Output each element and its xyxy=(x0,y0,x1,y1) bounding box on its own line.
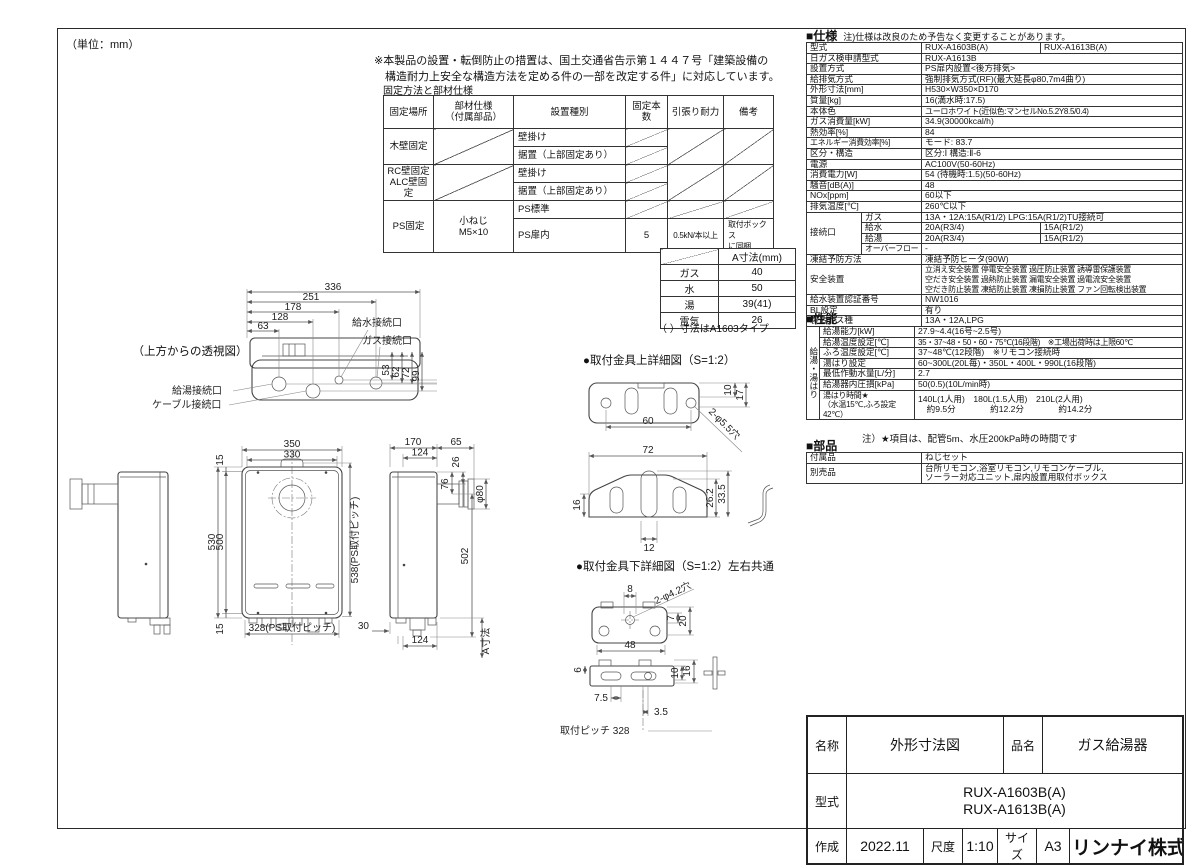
table-cell: 2.7 xyxy=(915,369,1183,380)
drawing-shape xyxy=(403,564,406,567)
table-cell: 27.9~4.4(16号~2.5号) xyxy=(915,327,1183,338)
table-cell: 給湯 xyxy=(862,233,922,244)
dim-label: 72 xyxy=(642,445,654,456)
drawing-shape xyxy=(589,475,707,517)
table-cell: 有り xyxy=(922,305,1183,316)
table-cell: 安全装置 xyxy=(807,265,922,295)
table-row: 設置方式PS扉内設置<後方排気> xyxy=(807,64,1183,75)
table-cell: 35・37~48・50・60・75℃(16段階) ※工場出荷時は上限60℃ xyxy=(915,337,1183,348)
table-cell: RUX-A1613B(A) xyxy=(1041,43,1183,54)
drawing-shape xyxy=(592,607,667,643)
table-cell: 140L(1人用) 180L(1.5人用) 210L(2人用) 約9.5分 約1… xyxy=(915,390,1183,420)
dim-label: 65 xyxy=(450,437,462,448)
spec-table: 型式RUX-A1603B(A)RUX-A1613B(A)日ガス検申請型式RUX-… xyxy=(806,42,1183,327)
table-row: 質量[kg]16(満水時:17.5) xyxy=(807,95,1183,106)
model-1: RUX-A1603B(A) xyxy=(963,784,1066,800)
dim-label: 502 xyxy=(460,547,471,564)
bracket-bottom-detail: ●取付金具下詳細図（S=1:2） 左右共通 8 2-φ4.2穴 7 20 48 … xyxy=(560,559,774,737)
table-cell: 型式 xyxy=(807,43,922,54)
drawing-shape xyxy=(650,626,660,636)
table-cell: エネルギー消費効率[%] xyxy=(807,138,922,149)
spec-title: ■仕様 xyxy=(806,29,837,43)
table-row: 給水装置認証番号NW1016 xyxy=(807,295,1183,306)
top-view: （上方からの透視図） 給水接続口 ガス接続口 給湯接続口 ケーブル接続口 336 xyxy=(133,282,438,411)
table-cell: 電源 xyxy=(807,159,922,170)
dim-label: 538(PS取付ピッチ) xyxy=(348,497,361,584)
created-label: 作成 xyxy=(808,829,847,864)
table-cell: 日ガス検申請型式 xyxy=(807,53,922,64)
table-cell: オーバーフロー xyxy=(862,244,922,255)
table-cell: 湯はり設定 xyxy=(820,358,915,369)
table-row: 電源AC100V(50-60Hz) xyxy=(807,159,1183,170)
table-row: 安全装置立消え安全装置 停電安全装置 過圧防止装置 誘導雷保護装置空だき安全装置… xyxy=(807,265,1183,295)
table-cell: ユーロホワイト(近似色:マンセルNo.5.2Y8.5/0.4) xyxy=(922,106,1183,117)
dim-label: 12 xyxy=(643,543,655,554)
dim-label: 48 xyxy=(624,640,636,651)
drawing-shape xyxy=(229,391,306,405)
table-cell: 260℃以下 xyxy=(922,201,1183,212)
drawing-shape xyxy=(377,347,380,378)
dim-label: 6 xyxy=(573,667,584,673)
table-cell: ガス xyxy=(862,212,922,223)
dim-label: 128 xyxy=(272,312,289,323)
table-cell: 20A(R3/4) xyxy=(922,223,1041,234)
table-cell: 本体色 xyxy=(807,106,922,117)
company-name: リンナイ株式会社 xyxy=(1070,829,1183,864)
table-cell: 区分・構造 xyxy=(807,148,922,159)
drawing-shape xyxy=(283,344,305,356)
table-row: 最低作動水量[L/分]2.7 xyxy=(807,369,1183,380)
table-row: 給湯・湯はり給湯能力[kW]27.9~4.4(16号~2.5号) xyxy=(807,327,1183,338)
table-cell: 13A・12A:15A(R1/2) LPG:15A(R1/2)TU接続可 xyxy=(922,212,1183,223)
dim-label: 60 xyxy=(642,416,654,427)
table-cell: 37~48℃(12段階) ※リモコン接続時 xyxy=(915,348,1183,359)
table-cell: 給湯器内圧損[kPa] xyxy=(820,379,915,390)
dim-label: 2-φ4.2穴 xyxy=(652,579,693,607)
dim-label: 328(PS取付ピッチ) xyxy=(249,621,336,634)
dim-label: A寸法 xyxy=(479,628,492,655)
drawing-shape xyxy=(325,612,328,615)
table-cell: 湯はり時間★（水温15℃,ふろ設定42℃） xyxy=(820,390,915,420)
drawing-shape xyxy=(625,388,638,414)
perf-title: ■性能 xyxy=(806,310,837,327)
table-cell: 強制排気方式(RF)(最大延長φ80,7m4曲り) xyxy=(922,74,1183,85)
drawing-shape xyxy=(150,618,170,625)
table-row: 湯はり設定60~300L(20L毎)・350L・400L・990L(16段階) xyxy=(807,358,1183,369)
drawing-shape xyxy=(325,471,328,474)
dim-label: 15 xyxy=(215,623,226,635)
title-block-row-name: 名称 外形寸法図 品名 ガス給湯器 xyxy=(808,717,1183,774)
table-row: 給水20A(R3/4)15A(R1/2) xyxy=(807,223,1183,234)
table-cell: 凍結予防ヒータ(90W) xyxy=(922,254,1183,265)
drawing-shape xyxy=(704,671,712,675)
table-cell: RUX-A1613B xyxy=(922,53,1183,64)
table-cell: PS扉内設置<後方排気> xyxy=(922,64,1183,75)
table-cell: 54 (待機時:1.5)(50-60Hz) xyxy=(922,170,1183,181)
drawing-shape xyxy=(254,584,278,588)
model-numbers: RUX-A1603B(A) RUX-A1613B(A) xyxy=(847,774,1183,829)
table-row: 凍結予防方法凍結予防ヒータ(90W) xyxy=(807,254,1183,265)
dim-label: 33.5 xyxy=(717,484,728,504)
product-label: 品名 xyxy=(1004,717,1043,774)
table-cell: 60~300L(20L毎)・350L・400L・990L(16段階) xyxy=(915,358,1183,369)
table-row: エネルギー消費効率[%]モード: 83.7 xyxy=(807,138,1183,149)
drawing-shape xyxy=(750,488,773,526)
dim-label: 350 xyxy=(284,439,301,450)
bracket-bottom-caption2: 左右共通 xyxy=(728,559,774,573)
dim-label: 15 xyxy=(215,454,226,466)
drawing-shape xyxy=(306,384,320,398)
drawing-shape xyxy=(390,472,437,618)
table-row: 排気温度[℃]260℃以下 xyxy=(807,201,1183,212)
table-cell: 20A(R3/4) xyxy=(922,233,1041,244)
title-block-row-meta: 作成 2022.11 尺度 1:10 サイズ A3 リンナイ株式会社 xyxy=(808,829,1183,864)
drawing-shape xyxy=(82,484,118,504)
table-cell: 給湯・湯はり xyxy=(807,327,820,420)
table-cell: 60以下 xyxy=(922,191,1183,202)
drawing-shape xyxy=(601,398,611,408)
scale-value: 1:10 xyxy=(963,829,998,864)
table-row: 給湯20A(R3/4)15A(R1/2) xyxy=(807,233,1183,244)
table-row: 別売品台所リモコン,浴室リモコン,リモコンケーブル,ソーラー対応ユニット,扉内設… xyxy=(807,463,1183,483)
drawing-shape xyxy=(664,388,677,414)
dim-label: 3.5 xyxy=(654,707,668,718)
table-row: 日ガス検申請型式RUX-A1613B xyxy=(807,53,1183,64)
table-cell: 外形寸法[mm] xyxy=(807,85,922,96)
drawing-shape xyxy=(257,612,260,615)
dim-label: 7 xyxy=(666,615,677,621)
table-cell: 凍結予防方法 xyxy=(807,254,922,265)
table-cell: NW1016 xyxy=(922,295,1183,306)
drawing-shape xyxy=(70,479,82,509)
table-cell: 質量[kg] xyxy=(807,95,922,106)
cable-label: ケーブル接続口 xyxy=(152,398,221,411)
dim-label: 20 xyxy=(678,615,689,627)
dim-label: 500 xyxy=(215,533,226,550)
kyuto-label: 給湯接続口 xyxy=(172,384,222,397)
table-row: 消費電力[W]54 (待機時:1.5)(50-60Hz) xyxy=(807,170,1183,181)
table-cell: ふろ温度設定[℃] xyxy=(820,348,915,359)
table-cell: 騒音[dB(A)] xyxy=(807,180,922,191)
drawing-shape xyxy=(599,660,611,666)
table-cell: 排気温度[℃] xyxy=(807,201,922,212)
table-cell: 立消え安全装置 停電安全装置 過圧防止装置 誘導雷保護装置空だき安全装置 過熱防… xyxy=(922,265,1183,295)
table-cell: 給水 xyxy=(862,223,922,234)
dim-label: 10 xyxy=(670,667,681,679)
table-cell: - xyxy=(922,244,1183,255)
table-cell: 15A(R1/2) xyxy=(1041,223,1183,234)
table-cell: RUX-A1603B(A) xyxy=(922,43,1041,54)
perf-note: 注）★項目は、配管5m、水圧200kPa時の時間です xyxy=(862,431,1077,445)
drawing-shape xyxy=(631,672,656,680)
drawing-shape xyxy=(154,625,160,634)
table-row: 給湯温度設定[℃]35・37~48・50・60・75℃(16段階) ※工場出荷時… xyxy=(807,337,1183,348)
table-cell: 区分:Ⅰ 構造:Ⅱ-6 xyxy=(922,148,1183,159)
drawing-shape xyxy=(145,563,148,566)
table-row: 製造ガス種13A・12A,LPG xyxy=(807,316,1183,327)
table-cell: 50(0.5)(10L/min時) xyxy=(915,379,1183,390)
dim-label: 8 xyxy=(627,584,633,595)
size-value: A3 xyxy=(1037,829,1070,864)
table-cell: 設置方式 xyxy=(807,64,922,75)
drawing-shape xyxy=(639,660,651,666)
dim-label: 16 xyxy=(682,665,693,677)
drawing-shape xyxy=(601,672,621,680)
table-row: 給排気方式強制排気方式(RF)(最大延長φ80,7m4曲り) xyxy=(807,74,1183,85)
table-row: 本体色ユーロホワイト(近似色:マンセルNo.5.2Y8.5/0.4) xyxy=(807,106,1183,117)
drawing-shape xyxy=(428,618,436,625)
bracket-bottom-caption: ●取付金具下詳細図（S=1:2） xyxy=(576,559,728,573)
drawing-shape xyxy=(641,471,657,517)
table-cell: AC100V(50-60Hz) xyxy=(922,159,1183,170)
dim-label: 251 xyxy=(303,292,320,303)
table-cell: 台所リモコン,浴室リモコン,リモコンケーブル,ソーラー対応ユニット,扉内設置用取… xyxy=(922,463,1183,483)
table-row: 湯はり時間★（水温15℃,ふろ設定42℃）140L(1人用) 180L(1.5人… xyxy=(807,390,1183,420)
dim-label: 336 xyxy=(325,282,342,293)
spec-note: 注)仕様は改良のため予告なく変更することがあります。 xyxy=(843,32,1070,42)
table-row: NOx[ppm]60以下 xyxy=(807,191,1183,202)
dim-label: φ80 xyxy=(475,485,486,503)
name-label: 名称 xyxy=(808,717,847,774)
parts-table: 付属品ねじセット別売品台所リモコン,浴室リモコン,リモコンケーブル,ソーラー対応… xyxy=(806,452,1183,484)
table-cell: 15A(R1/2) xyxy=(1041,233,1183,244)
title-block-row-model: 型式 RUX-A1603B(A) RUX-A1613B(A) xyxy=(808,774,1183,829)
table-row: 外形寸法[mm]H530×W350×D170 xyxy=(807,85,1183,96)
dim-label: 76 xyxy=(440,478,451,490)
drawing-shape xyxy=(272,377,286,391)
table-cell: 別売品 xyxy=(807,463,922,483)
performance-table: 給湯・湯はり給湯能力[kW]27.9~4.4(16号~2.5号)給湯温度設定[℃… xyxy=(806,326,1183,420)
dim-label: 17 xyxy=(735,389,746,401)
table-row: BL設定有り xyxy=(807,305,1183,316)
drawing-shape xyxy=(396,618,406,623)
dim-label: 2-φ5.5穴 xyxy=(706,405,743,442)
table-cell: H530×W350×D170 xyxy=(922,85,1183,96)
drawing-shape xyxy=(748,485,770,523)
model-label: 型式 xyxy=(808,774,847,829)
drawing-shape xyxy=(257,471,260,474)
drawing-shape xyxy=(316,584,334,588)
table-cell: 13A・12A,LPG xyxy=(922,316,1183,327)
table-row: 付属品ねじセット xyxy=(807,453,1183,464)
dim-label: 170 xyxy=(405,437,422,448)
table-cell: 付属品 xyxy=(807,453,922,464)
table-cell: 給湯能力[kW] xyxy=(820,327,915,338)
dim-label: 124 xyxy=(412,635,429,646)
right-side-view: 170 65 124 26 φ80 76 502 30 124 A寸法 xyxy=(358,437,492,658)
table-cell: 消費電力[W] xyxy=(807,170,922,181)
dim-label: 10 xyxy=(723,384,734,396)
drawing-shape xyxy=(335,376,343,384)
table-row: 接続口ガス13A・12A:15A(R1/2) LPG:15A(R1/2)TU接続… xyxy=(807,212,1183,223)
table-row: ふろ温度設定[℃]37~48℃(12段階) ※リモコン接続時 xyxy=(807,348,1183,359)
table-row: ガス消費量[kW]34.9(30000kcal/h) xyxy=(807,117,1183,128)
table-cell: 34.9(30000kcal/h) xyxy=(922,117,1183,128)
dim-label: 7.5 xyxy=(594,693,608,704)
drawing-shape xyxy=(286,584,310,588)
table-cell: 48 xyxy=(922,180,1183,191)
drawing-shape xyxy=(713,657,717,689)
drawing-shape xyxy=(610,487,623,513)
kyusui-label: 給水接続口 xyxy=(352,316,402,329)
dim-label: 30 xyxy=(358,621,370,632)
table-row: 給湯器内圧損[kPa]50(0.5)(10L/min時) xyxy=(807,379,1183,390)
dim-label: 63 xyxy=(257,321,269,332)
drawing-shape xyxy=(164,625,170,634)
table-row: オーバーフロー- xyxy=(807,244,1183,255)
title-block: 名称 外形寸法図 品名 ガス給湯器 型式 RUX-A1603B(A) RUX-A… xyxy=(806,715,1184,865)
drawing-shape xyxy=(410,618,425,630)
created-date: 2022.11 xyxy=(847,829,924,864)
drawing-shape xyxy=(645,673,652,680)
dim-label: 26.2 xyxy=(705,488,716,508)
drawing-shape xyxy=(370,377,382,389)
product-name: ガス給湯器 xyxy=(1043,717,1183,774)
size-label: サイズ xyxy=(998,829,1037,864)
table-cell: 給水装置認証番号 xyxy=(807,295,922,306)
table-cell: 16(満水時:17.5) xyxy=(922,95,1183,106)
table-cell: 熱効率[%] xyxy=(807,127,922,138)
dim-label: 26 xyxy=(451,456,462,468)
mount-pitch-label: 取付ピッチ 328 xyxy=(560,724,630,737)
table-cell: 接続口 xyxy=(807,212,862,254)
table-cell: モード: 83.7 xyxy=(922,138,1183,149)
drawing-shape xyxy=(718,671,725,675)
table-cell: NOx[ppm] xyxy=(807,191,922,202)
model-2: RUX-A1613B(A) xyxy=(963,801,1066,817)
drawing-name: 外形寸法図 xyxy=(847,717,1004,774)
dim-label: 330 xyxy=(284,450,301,461)
drawing-shape xyxy=(673,487,686,513)
left-side-view xyxy=(70,472,170,634)
table-cell: 給湯温度設定[℃] xyxy=(820,337,915,348)
drawing-shape xyxy=(590,666,674,686)
gas-label: ガス接続口 xyxy=(362,334,412,347)
table-row: 型式RUX-A1603B(A)RUX-A1613B(A) xyxy=(807,43,1183,54)
drawing-shape xyxy=(599,626,609,636)
dim-label: 99 xyxy=(411,370,422,382)
drawing-shape xyxy=(638,383,664,388)
table-cell: 84 xyxy=(922,127,1183,138)
dim-label: 16 xyxy=(572,499,583,511)
front-view: 350 330 530 500 15 15 538(PS取付ピッチ) 328(P… xyxy=(207,439,361,645)
bracket-top-caption: ●取付金具上詳細図（S=1:2） xyxy=(583,353,735,367)
table-row: 熱効率[%]84 xyxy=(807,127,1183,138)
table-cell: 最低作動水量[L/分] xyxy=(820,369,915,380)
table-cell: 給排気方式 xyxy=(807,74,922,85)
table-row: 騒音[dB(A)]48 xyxy=(807,180,1183,191)
bracket-top-detail: ●取付金具上詳細図（S=1:2） 60 10 17 2-φ5.5穴 72 26.… xyxy=(572,353,773,554)
dim-label: 124 xyxy=(412,448,429,459)
top-view-caption: （上方からの透視図） xyxy=(133,344,248,358)
table-row: 区分・構造区分:Ⅰ 構造:Ⅱ-6 xyxy=(807,148,1183,159)
drawing-shape xyxy=(128,618,136,622)
table-cell: ねじセット xyxy=(922,453,1183,464)
table-cell: ガス消費量[kW] xyxy=(807,117,922,128)
drawing-shape xyxy=(118,472,168,618)
scale-label: 尺度 xyxy=(924,829,963,864)
